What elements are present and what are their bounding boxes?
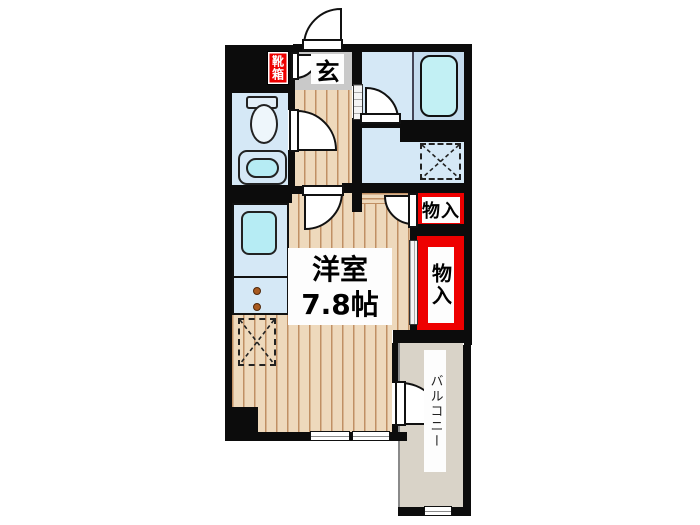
- toilet-bowl: [250, 104, 278, 144]
- shoe-cabinet-label: 靴箱: [267, 51, 289, 85]
- main-room-size: 7.8帖: [301, 287, 379, 322]
- kitchen-sink: [241, 211, 277, 255]
- refrigerator-x: [240, 320, 274, 364]
- storage-small-label: 物入: [422, 197, 460, 223]
- entrance-door-leaf: [303, 40, 342, 50]
- floorplan-canvas: 靴箱 玄 洋室 7.8帖 物入 物入 バルコニー: [0, 0, 700, 525]
- refrigerator-space: [238, 318, 276, 366]
- toilet-door-leaf: [290, 110, 298, 151]
- entry-cabinet-door-leaf: [292, 53, 298, 79]
- stove-burner-1: [253, 287, 261, 295]
- main-room-label: 洋室: [312, 252, 368, 287]
- washbasin-bowl: [246, 158, 279, 178]
- stove-burner-2: [253, 303, 261, 311]
- main-room-door-leaf: [303, 186, 343, 195]
- counter-divider: [232, 276, 289, 278]
- washing-machine-x: [422, 145, 459, 178]
- bathroom-door-leaf: [361, 114, 400, 123]
- storage-small-door-leaf: [409, 194, 417, 227]
- washing-machine-space: [420, 143, 461, 180]
- balcony-door-leaf: [396, 382, 405, 425]
- balcony-label: バルコニー: [424, 350, 446, 472]
- toilet-door-arc: [297, 111, 336, 150]
- bathtub: [420, 55, 458, 117]
- storage-large-label: 物入: [428, 247, 454, 323]
- entrance-label: 玄: [311, 54, 344, 84]
- main-room-door-arc: [305, 192, 342, 229]
